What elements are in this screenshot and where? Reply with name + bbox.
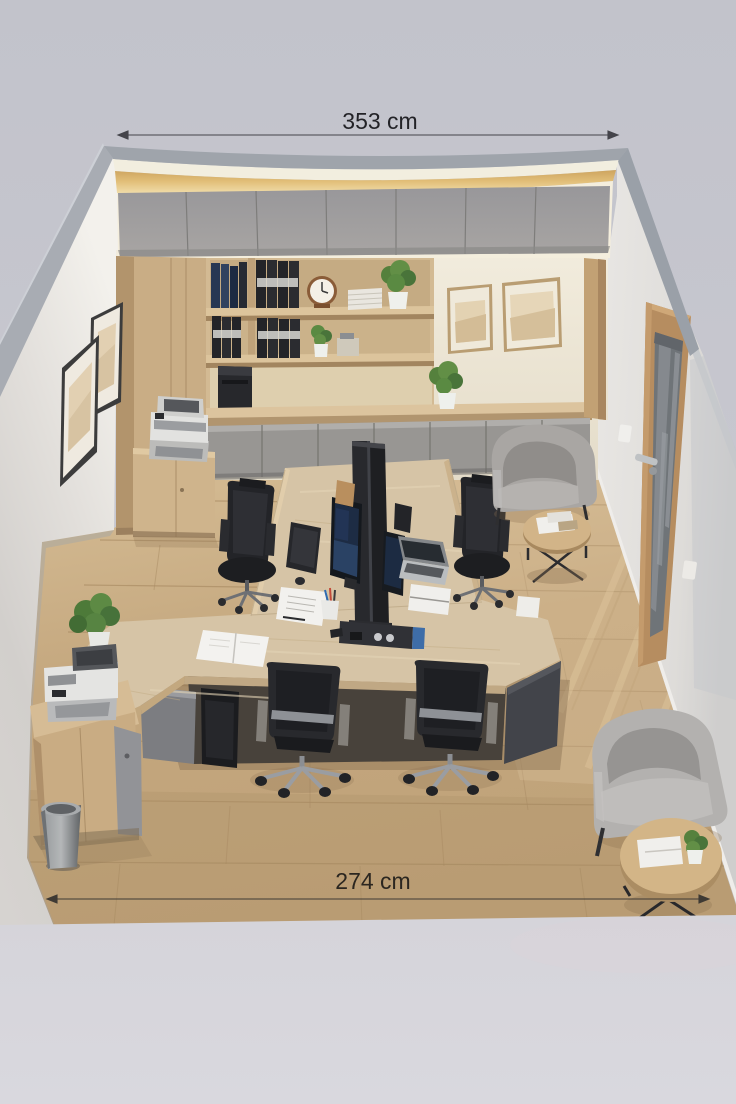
svg-text:274 cm: 274 cm [335,868,410,894]
svg-text:353 cm: 353 cm [342,108,417,134]
